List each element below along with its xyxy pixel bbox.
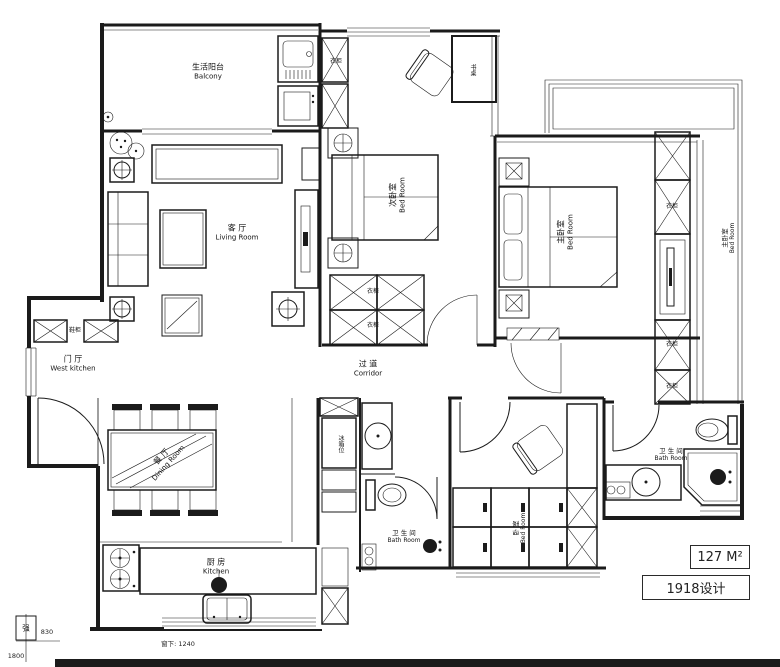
room-label-bath-master: 卫 生 间Bath Room [655,447,688,463]
area-tag: 127 M² [690,545,750,569]
wardrobe-label: 衣柜 [330,59,342,65]
desk-chair [512,423,565,475]
corridor-wardrobe [330,275,424,345]
toilet [378,484,406,506]
service-cabinets [320,398,358,624]
floor-plan-drawing [0,0,780,667]
wardrobe-label: 衣柜 [666,204,678,210]
room-label-entry: 门 厅West kitchen [50,355,95,374]
meter-box-label: 强 [22,623,30,634]
room-label-bedroom2: 次卧室Bed Room [389,177,408,213]
room-label-master-side: 主卧室Bed Room [721,223,737,254]
fridge-label: 冰箱位 [337,435,343,453]
master-wardrobe-column [655,132,690,404]
bed [332,155,438,240]
dimension-marks [16,614,780,667]
bathroom-mid-fixtures [362,403,442,570]
vanity [606,465,681,500]
desk-label: 书桌 [469,64,475,76]
desk-chair [405,49,456,99]
bathroom-master-fixtures [604,416,741,516]
dim-1800: 1800 [8,652,25,660]
room-label-master: 主卧室Bed Room [557,214,576,250]
nightstand [499,158,529,186]
room-label-kitchen: 厨 房Kitchen [203,558,229,577]
room-label-bath-mid: 卫 生 间Bath Room [388,529,421,545]
wardrobe-label: 衣柜 [666,342,678,348]
wardrobe-label: 衣柜 [666,384,678,390]
brand-tag: 1918设计 [642,575,750,600]
faucet [211,577,227,593]
window-note: 窗下: 1240 [161,638,195,648]
room-label-bedroom3: 卧 室Bed Room [512,513,528,544]
shower-head [423,539,437,553]
toilet [696,419,728,441]
room-label-living: 客 厅Living Room [216,224,259,243]
wardrobe-label: 衣柜 [367,289,379,295]
wardrobe-label: 衣柜 [367,323,379,329]
walls [26,23,744,630]
nightstand [499,290,529,318]
room-label-balcony: 生活阳台Balcony [192,63,224,82]
dim-830: 830 [41,628,53,636]
room-label-corridor: 过 道Corridor [354,360,382,379]
shoe-cabinet-label: 鞋柜 [69,328,81,334]
floor-plan: 生活阳台Balcony 客 厅Living Room 次卧室Bed Room 主… [0,0,780,667]
living-room-furniture [108,132,320,336]
